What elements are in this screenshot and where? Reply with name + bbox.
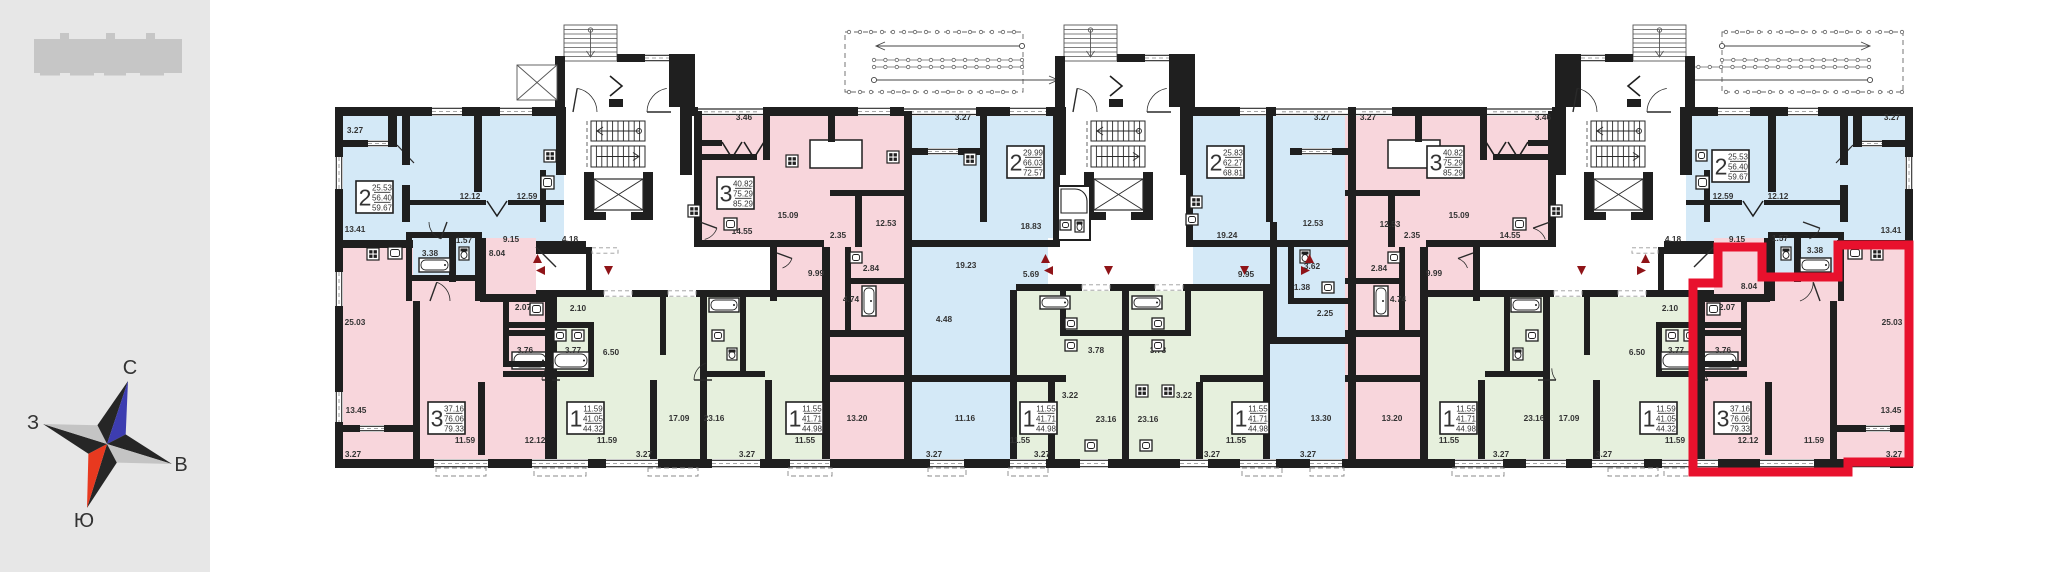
svg-text:79.33: 79.33	[1730, 425, 1751, 434]
svg-text:75.29: 75.29	[733, 190, 754, 199]
svg-text:11.59: 11.59	[1804, 435, 1825, 445]
svg-text:3.27: 3.27	[1314, 112, 1331, 122]
svg-text:13.45: 13.45	[346, 405, 367, 415]
svg-text:25.53: 25.53	[1728, 153, 1749, 162]
svg-text:В: В	[174, 454, 187, 476]
svg-text:66.03: 66.03	[1023, 159, 1044, 168]
svg-text:1: 1	[1235, 406, 1248, 432]
svg-text:3: 3	[1717, 406, 1730, 432]
svg-text:37.16: 37.16	[444, 405, 465, 414]
svg-text:11.59: 11.59	[597, 435, 618, 445]
svg-text:17.09: 17.09	[669, 413, 690, 423]
svg-text:12.12: 12.12	[460, 191, 481, 201]
svg-text:3.27: 3.27	[345, 449, 362, 459]
svg-text:11.55: 11.55	[795, 435, 816, 445]
svg-text:62.27: 62.27	[1223, 159, 1244, 168]
svg-text:13.30: 13.30	[1311, 413, 1332, 423]
svg-text:3.62: 3.62	[1304, 261, 1321, 271]
svg-text:37.16: 37.16	[1730, 405, 1751, 414]
svg-text:3.27: 3.27	[1596, 449, 1613, 459]
svg-text:3.27: 3.27	[739, 449, 756, 459]
svg-text:11.59: 11.59	[583, 405, 603, 414]
svg-text:11.55: 11.55	[1439, 435, 1460, 445]
svg-text:44.98: 44.98	[802, 425, 823, 434]
svg-text:40.82: 40.82	[1443, 149, 1464, 158]
svg-text:3: 3	[720, 181, 733, 207]
svg-text:44.98: 44.98	[1456, 425, 1477, 434]
svg-text:1.38: 1.38	[1294, 282, 1311, 292]
svg-text:75.29: 75.29	[1443, 159, 1464, 168]
svg-text:5.69: 5.69	[1023, 269, 1040, 279]
svg-text:59.67: 59.67	[1728, 173, 1749, 182]
svg-text:1: 1	[1023, 406, 1036, 432]
svg-text:2.07: 2.07	[1719, 302, 1736, 312]
svg-text:18.83: 18.83	[1021, 221, 1042, 231]
svg-text:3.27: 3.27	[1034, 449, 1051, 459]
svg-text:59.67: 59.67	[372, 204, 393, 213]
svg-text:11.55: 11.55	[1226, 435, 1247, 445]
svg-text:3.27: 3.27	[636, 449, 653, 459]
svg-text:23.16: 23.16	[704, 413, 725, 423]
svg-text:23.16: 23.16	[1138, 414, 1159, 424]
svg-text:85.29: 85.29	[1443, 169, 1464, 178]
svg-text:3.22: 3.22	[1062, 390, 1079, 400]
svg-text:3.46: 3.46	[1535, 112, 1552, 122]
svg-text:13.20: 13.20	[1382, 413, 1403, 423]
svg-text:3.27: 3.27	[1300, 449, 1317, 459]
svg-text:2.35: 2.35	[830, 230, 847, 240]
svg-text:3.27: 3.27	[1204, 449, 1221, 459]
svg-text:9.15: 9.15	[503, 234, 520, 244]
svg-text:19.23: 19.23	[956, 260, 977, 270]
svg-text:19.24: 19.24	[1217, 230, 1238, 240]
svg-text:85.29: 85.29	[733, 200, 754, 209]
svg-text:40.82: 40.82	[733, 180, 754, 189]
svg-text:25.83: 25.83	[1223, 149, 1244, 158]
svg-text:3.38: 3.38	[422, 248, 439, 258]
svg-text:41.05: 41.05	[1656, 415, 1677, 424]
svg-text:25.03: 25.03	[1882, 317, 1903, 327]
svg-text:3.38: 3.38	[1807, 245, 1824, 255]
svg-text:С: С	[123, 357, 137, 379]
svg-text:23.16: 23.16	[1524, 413, 1545, 423]
svg-text:8.04: 8.04	[1741, 281, 1758, 291]
svg-text:8.04: 8.04	[489, 248, 506, 258]
svg-text:12.53: 12.53	[1303, 218, 1324, 228]
svg-text:3.27: 3.27	[1360, 112, 1377, 122]
svg-text:2.10: 2.10	[1662, 303, 1679, 313]
svg-text:2.35: 2.35	[1404, 230, 1421, 240]
svg-text:68.81: 68.81	[1223, 169, 1244, 178]
svg-text:44.98: 44.98	[1036, 425, 1057, 434]
svg-text:12.59: 12.59	[1713, 191, 1734, 201]
svg-text:2.84: 2.84	[863, 263, 880, 273]
svg-text:41.71: 41.71	[1036, 415, 1057, 424]
svg-text:З: З	[27, 412, 39, 434]
svg-text:44.98: 44.98	[1248, 425, 1269, 434]
svg-text:13.41: 13.41	[1881, 225, 1902, 235]
svg-text:4.18: 4.18	[1665, 234, 1682, 244]
svg-text:56.40: 56.40	[1728, 163, 1749, 172]
svg-text:72.57: 72.57	[1023, 169, 1044, 178]
svg-text:23.16: 23.16	[1096, 414, 1117, 424]
svg-text:3.27: 3.27	[955, 112, 972, 122]
svg-text:6.50: 6.50	[603, 347, 620, 357]
svg-text:12.59: 12.59	[517, 191, 538, 201]
svg-text:3.27: 3.27	[1884, 112, 1901, 122]
svg-text:76.06: 76.06	[444, 415, 465, 424]
svg-text:9.95: 9.95	[1238, 269, 1255, 279]
svg-text:79.33: 79.33	[444, 425, 465, 434]
svg-text:17.09: 17.09	[1559, 413, 1580, 423]
svg-text:2: 2	[1715, 154, 1728, 180]
svg-text:2.07: 2.07	[515, 302, 532, 312]
svg-text:12.53: 12.53	[1380, 219, 1401, 229]
svg-text:4.74: 4.74	[1390, 294, 1407, 304]
svg-text:4.18: 4.18	[562, 234, 579, 244]
svg-text:11.55: 11.55	[1036, 405, 1056, 414]
svg-text:3.76: 3.76	[1715, 345, 1732, 355]
svg-text:25.03: 25.03	[345, 317, 366, 327]
svg-text:56.40: 56.40	[372, 194, 393, 203]
svg-text:1.57: 1.57	[1772, 233, 1789, 243]
svg-text:12.12: 12.12	[1768, 191, 1789, 201]
svg-text:41.71: 41.71	[1456, 415, 1477, 424]
svg-text:1: 1	[1643, 406, 1656, 432]
svg-text:1.57: 1.57	[456, 235, 473, 245]
svg-text:44.32: 44.32	[1656, 425, 1677, 434]
svg-text:11.55: 11.55	[1248, 405, 1268, 414]
svg-text:3.76: 3.76	[517, 345, 534, 355]
svg-text:3.46: 3.46	[736, 112, 753, 122]
svg-text:29.99: 29.99	[1023, 149, 1044, 158]
svg-text:12.53: 12.53	[876, 218, 897, 228]
svg-text:9.99: 9.99	[1426, 268, 1443, 278]
svg-text:2.25: 2.25	[1317, 308, 1334, 318]
svg-text:76.06: 76.06	[1730, 415, 1751, 424]
svg-text:15.09: 15.09	[778, 210, 799, 220]
svg-text:2: 2	[1210, 150, 1223, 176]
svg-text:13.20: 13.20	[847, 413, 868, 423]
svg-text:3.78: 3.78	[1088, 345, 1105, 355]
svg-text:11.59: 11.59	[1656, 405, 1676, 414]
svg-text:9.99: 9.99	[808, 268, 825, 278]
svg-text:3: 3	[431, 406, 444, 432]
svg-text:3: 3	[1430, 150, 1443, 176]
svg-text:3.27: 3.27	[1493, 449, 1510, 459]
svg-text:3.77: 3.77	[1668, 345, 1685, 355]
svg-text:4.74: 4.74	[843, 294, 860, 304]
svg-text:3.22: 3.22	[1176, 390, 1193, 400]
svg-text:13.41: 13.41	[345, 224, 366, 234]
svg-text:3.77: 3.77	[565, 345, 582, 355]
svg-text:11.59: 11.59	[455, 435, 476, 445]
svg-text:15.09: 15.09	[1449, 210, 1470, 220]
svg-text:11.16: 11.16	[955, 413, 976, 423]
svg-text:2: 2	[359, 185, 372, 211]
svg-text:2: 2	[1010, 150, 1023, 176]
svg-text:12.12: 12.12	[525, 435, 546, 445]
svg-text:1: 1	[1443, 406, 1456, 432]
svg-text:3.27: 3.27	[926, 449, 943, 459]
svg-text:11.55: 11.55	[1010, 435, 1031, 445]
svg-text:14.55: 14.55	[1500, 230, 1521, 240]
svg-text:3.27: 3.27	[347, 125, 364, 135]
svg-text:2.10: 2.10	[570, 303, 587, 313]
svg-text:44.32: 44.32	[583, 425, 604, 434]
svg-text:12.12: 12.12	[1738, 435, 1759, 445]
svg-text:41.71: 41.71	[802, 415, 823, 424]
svg-text:11.55: 11.55	[802, 405, 822, 414]
svg-text:25.53: 25.53	[372, 184, 393, 193]
svg-text:41.05: 41.05	[583, 415, 604, 424]
svg-text:41.71: 41.71	[1248, 415, 1269, 424]
svg-text:11.55: 11.55	[1456, 405, 1476, 414]
svg-text:2.84: 2.84	[1371, 263, 1388, 273]
svg-text:Ю: Ю	[74, 510, 94, 532]
svg-text:4.48: 4.48	[936, 314, 953, 324]
svg-text:13.45: 13.45	[1881, 405, 1902, 415]
svg-text:1: 1	[570, 406, 583, 432]
svg-text:6.50: 6.50	[1629, 347, 1646, 357]
svg-text:1: 1	[789, 406, 802, 432]
svg-text:11.59: 11.59	[1665, 435, 1686, 445]
